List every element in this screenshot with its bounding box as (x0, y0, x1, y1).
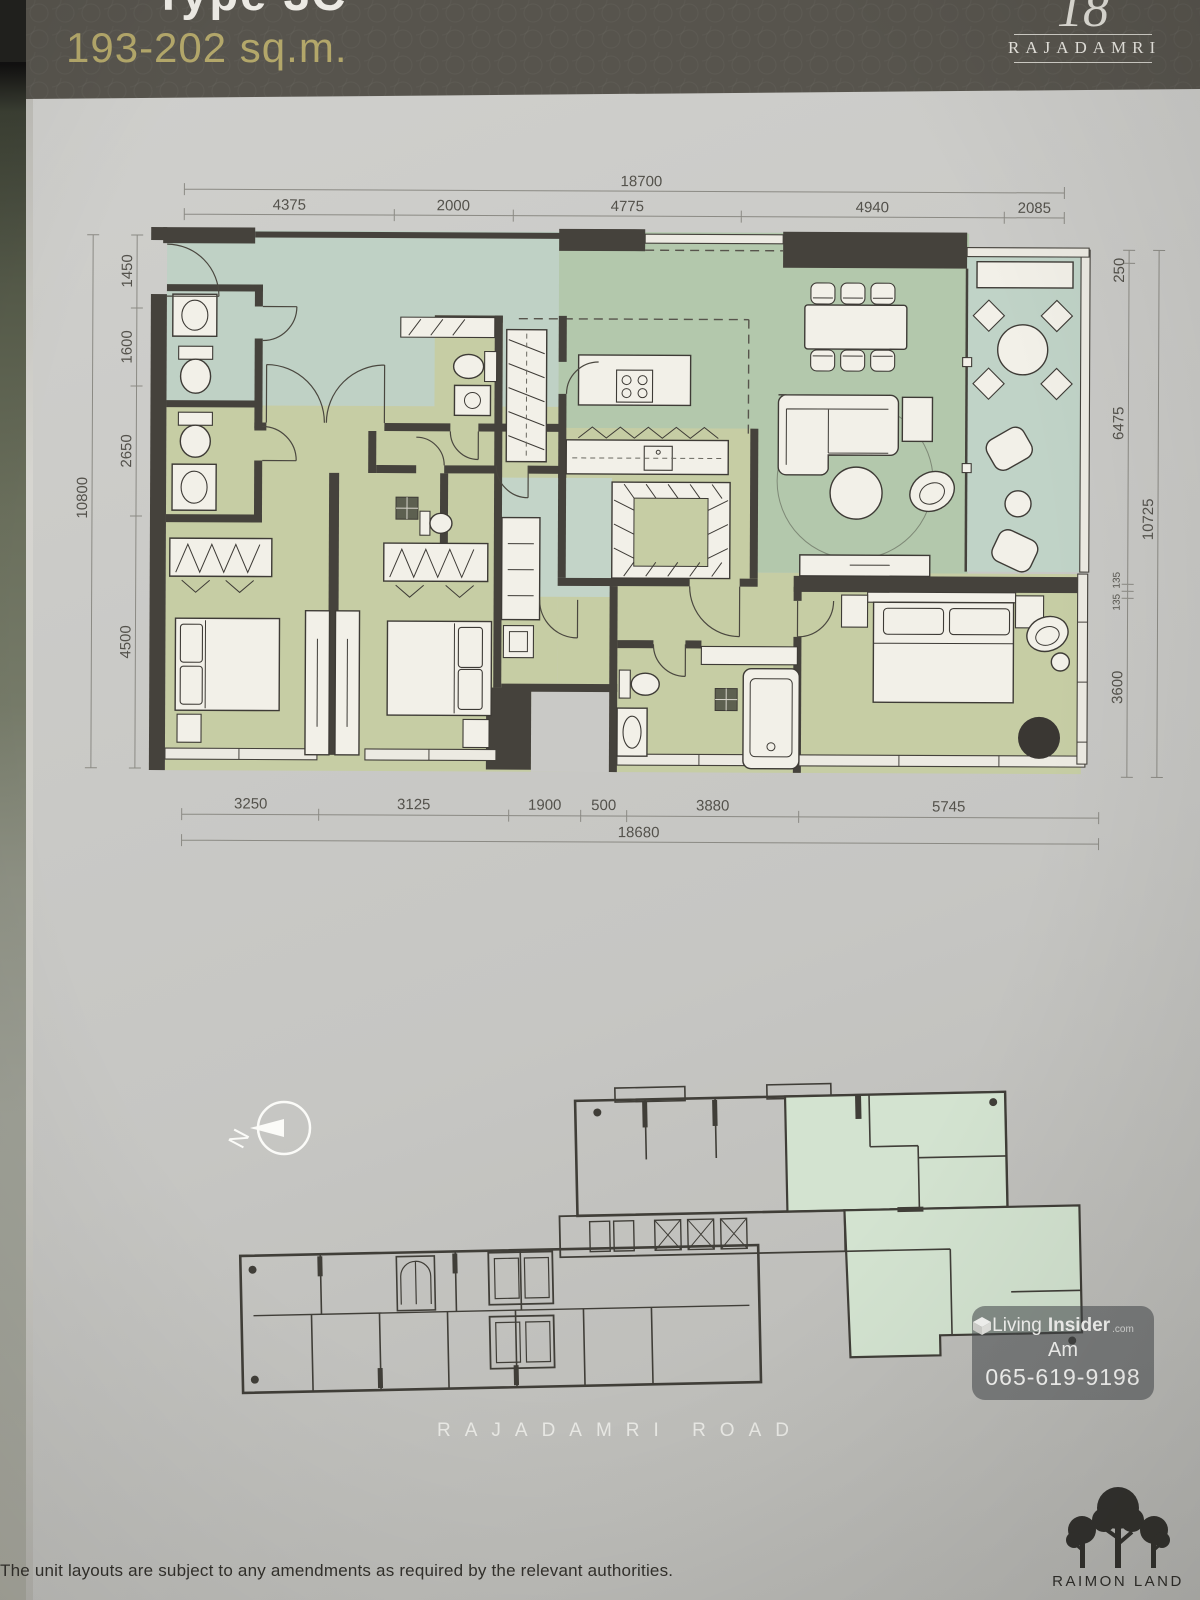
dim-right-seg-1: 250 (1111, 258, 1128, 283)
pillow (180, 666, 202, 704)
raimon-land-wordmark: RAIMON LAND (1052, 1573, 1184, 1590)
highlighted-unit-upper (785, 1092, 1007, 1212)
chair (871, 350, 895, 371)
watermark-agent-name: Am (1048, 1339, 1078, 1362)
livinginsider-watermark: LivingInsider.com Am 065-619-9198 (972, 1306, 1154, 1400)
terrace-glass-line (966, 269, 967, 572)
toilet-icon (631, 673, 659, 695)
rajadamri-wordmark: RAJADAMRI (1008, 38, 1158, 58)
planter (977, 262, 1073, 288)
vanity-counter (701, 646, 797, 664)
raimon-trees-icon (1066, 1487, 1170, 1568)
side-table (902, 397, 932, 441)
north-arrow-icon (250, 1119, 284, 1137)
dim-bottom-seg-6: 5745 (932, 798, 965, 815)
dim-top-seg-2: 2000 (437, 197, 470, 214)
dim-bottom-seg-4: 500 (591, 797, 616, 814)
terrace-floor (966, 250, 1087, 573)
unit-floor-plan: 18700 4375 2000 4775 4940 2085 10800 145… (0, 137, 1200, 882)
pillow (458, 669, 482, 709)
chair (811, 350, 835, 371)
appliance (503, 626, 533, 658)
watermark-phone: 065-619-9198 (985, 1364, 1140, 1391)
cooktop-icon (616, 370, 652, 402)
watermark-brand-light: Living (992, 1315, 1042, 1337)
north-label: N (223, 1125, 255, 1153)
coffee-table (830, 467, 882, 519)
toilet-tank (485, 351, 497, 381)
bench (177, 714, 201, 742)
bench (463, 719, 489, 747)
dim-top-seg-3: 4775 (611, 198, 644, 215)
pillow (458, 627, 482, 667)
dim-left-seg-4: 4500 (117, 625, 134, 658)
logo-rule-top (1014, 34, 1152, 35)
side-table (1005, 491, 1031, 517)
raimon-land-logo: RAIMON LAND (1040, 1478, 1200, 1600)
toilet-tank (178, 412, 212, 425)
dimensions-right: 250 6475 135 135 3600 10725 (1109, 250, 1165, 777)
rajadamri-logo: 18 RAJADAMRI (1008, 0, 1158, 66)
chair (871, 283, 895, 304)
dimensions-top: 18700 4375 2000 4775 4940 2085 (184, 171, 1064, 224)
dim-left-seg-3: 2650 (118, 434, 135, 467)
footstool (1051, 653, 1069, 671)
headboard (868, 592, 1016, 603)
toilet-icon (180, 425, 210, 457)
dim-right-seg-2: 6475 (1110, 407, 1127, 440)
stair-core (396, 1256, 435, 1311)
toilet-tank (619, 670, 630, 698)
dim-top-seg-4: 4940 (856, 199, 889, 216)
dim-right-seg-4: 135 (1112, 593, 1123, 610)
dim-top-seg-5: 2085 (1018, 200, 1051, 217)
livinginsider-cube-icon (972, 1316, 992, 1336)
sink (454, 385, 490, 415)
dim-left-overall: 10800 (74, 477, 91, 519)
brochure-page: Type 3C 193-202 sq.m. 18 RAJADAMRI (0, 0, 1200, 1600)
dim-bottom-overall: 18680 (618, 824, 660, 841)
road-label: RAJADAMRI ROAD (437, 1420, 803, 1441)
dim-right-seg-5: 3600 (1109, 671, 1126, 704)
logo-rule-bottom (1014, 62, 1152, 63)
dim-right-overall: 10725 (1140, 498, 1157, 540)
photo-corner-shadow (0, 0, 26, 62)
dining-furniture (805, 283, 907, 371)
dim-top-seg-1: 4375 (273, 197, 306, 214)
pillow (949, 609, 1009, 635)
bathtub (743, 669, 799, 769)
dim-top-overall: 18700 (621, 173, 663, 190)
dim-left-seg-1: 1450 (119, 254, 136, 287)
toilet-icon (454, 354, 484, 378)
nightstand (841, 595, 867, 627)
walkin-closet (612, 482, 730, 579)
toilet-icon (430, 513, 452, 533)
service-notch (531, 684, 617, 772)
floor-outline (237, 1078, 1083, 1393)
north-arrow: N (223, 1102, 310, 1154)
dim-bottom-seg-5: 3880 (696, 797, 729, 814)
toilet-tank (179, 346, 213, 359)
watermark-brand-tld: .com (1112, 1324, 1134, 1335)
pillow (883, 608, 943, 634)
dim-bottom-seg-3: 1900 (528, 797, 561, 814)
chair (811, 283, 835, 304)
toilet-tank (420, 511, 430, 535)
outdoor-table (998, 325, 1048, 375)
dim-right-seg-3: 135 (1112, 571, 1123, 588)
watermark-brand-bold: Insider (1048, 1315, 1110, 1337)
chair (841, 283, 865, 304)
livinginsider-logo: LivingInsider.com (992, 1315, 1134, 1337)
rajadamri-monogram-icon: 18 (1008, 0, 1158, 30)
chair (841, 350, 865, 371)
dining-table (805, 305, 907, 349)
unit-area-text: 193-202 sq.m. (66, 24, 348, 72)
pillow (180, 624, 202, 662)
disclaimer-text: The unit layouts are subject to any amen… (0, 1561, 673, 1581)
dressing-cabinet (502, 518, 540, 620)
toilet-icon (181, 359, 211, 393)
wardrobe (384, 543, 488, 581)
header-band: Type 3C 193-202 sq.m. 18 RAJADAMRI (26, 0, 1200, 100)
round-table-dark (1018, 717, 1060, 759)
dim-left-seg-2: 1600 (119, 330, 136, 363)
dim-bottom-seg-2: 3125 (397, 796, 430, 813)
dimensions-bottom: 3250 3125 1900 500 3880 5745 18680 (182, 795, 1099, 850)
wardrobe (170, 538, 272, 576)
dimensions-left: 10800 1450 1600 2650 4500 (73, 235, 143, 768)
unit-type-title: Type 3C (154, 0, 347, 21)
dim-bottom-seg-1: 3250 (234, 795, 267, 812)
